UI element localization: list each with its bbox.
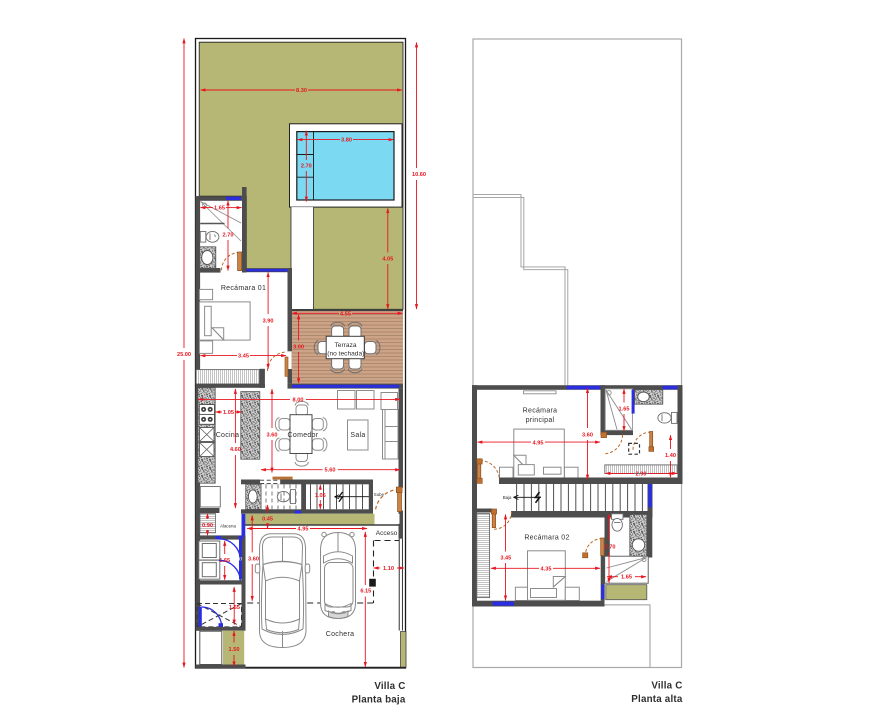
- svg-text:4.05: 4.05: [382, 257, 393, 263]
- svg-text:0.90: 0.90: [202, 523, 213, 529]
- svg-text:3.90: 3.90: [263, 318, 274, 324]
- svg-text:1.10: 1.10: [383, 566, 394, 572]
- svg-text:Sube: Sube: [374, 492, 385, 497]
- svg-text:3.45: 3.45: [238, 354, 249, 360]
- svg-text:3.80: 3.80: [341, 138, 352, 144]
- svg-text:Planta baja: Planta baja: [352, 695, 406, 706]
- svg-text:1.65: 1.65: [621, 575, 632, 581]
- svg-text:2.70: 2.70: [605, 545, 616, 551]
- svg-text:3.00: 3.00: [293, 345, 304, 351]
- svg-text:1.40: 1.40: [665, 453, 676, 459]
- svg-text:4.60: 4.60: [230, 447, 241, 453]
- svg-text:Villa C: Villa C: [374, 681, 405, 692]
- svg-text:3.60: 3.60: [267, 433, 278, 439]
- svg-text:Comedor: Comedor: [288, 432, 319, 439]
- svg-text:Recámara: Recámara: [523, 408, 558, 415]
- svg-text:4.95: 4.95: [298, 527, 309, 533]
- svg-text:Sala: Sala: [350, 432, 365, 439]
- svg-text:3.60: 3.60: [248, 557, 259, 563]
- svg-text:4.95: 4.95: [533, 440, 544, 446]
- svg-text:4.35: 4.35: [541, 566, 552, 572]
- svg-text:(no techada): (no techada): [327, 351, 364, 358]
- svg-text:8.00: 8.00: [293, 398, 304, 404]
- svg-text:1.65: 1.65: [619, 407, 630, 413]
- svg-text:2.70: 2.70: [223, 233, 234, 239]
- svg-text:1.05: 1.05: [315, 493, 326, 499]
- svg-text:Terraza: Terraza: [335, 342, 357, 349]
- svg-text:4.55: 4.55: [340, 311, 351, 317]
- svg-text:25.00: 25.00: [177, 352, 191, 358]
- svg-text:3.60: 3.60: [582, 433, 593, 439]
- svg-text:Recámara 02: Recámara 02: [524, 535, 569, 542]
- svg-text:principal: principal: [526, 417, 555, 424]
- svg-text:Planta alta: Planta alta: [631, 694, 683, 705]
- svg-text:5.60: 5.60: [325, 468, 336, 474]
- svg-text:Alacena: Alacena: [220, 524, 236, 529]
- svg-text:Acceso: Acceso: [376, 530, 398, 537]
- svg-text:Baja: Baja: [503, 495, 512, 500]
- svg-text:Recámara 01: Recámara 01: [221, 285, 266, 292]
- svg-text:1.50: 1.50: [229, 647, 240, 653]
- svg-text:3.45: 3.45: [500, 556, 511, 562]
- svg-text:8.30: 8.30: [296, 88, 307, 94]
- svg-text:Cochera: Cochera: [326, 631, 355, 638]
- svg-text:1.65: 1.65: [219, 558, 230, 564]
- svg-text:10.60: 10.60: [412, 172, 426, 178]
- svg-text:1.65: 1.65: [214, 206, 225, 212]
- svg-text:1.05: 1.05: [223, 410, 234, 416]
- svg-text:0.45: 0.45: [262, 517, 273, 523]
- svg-text:2.90: 2.90: [636, 471, 647, 477]
- svg-text:Villa C: Villa C: [651, 681, 682, 692]
- svg-text:6.15: 6.15: [360, 589, 371, 595]
- svg-text:1.65: 1.65: [229, 605, 240, 611]
- svg-text:2.70: 2.70: [301, 164, 312, 170]
